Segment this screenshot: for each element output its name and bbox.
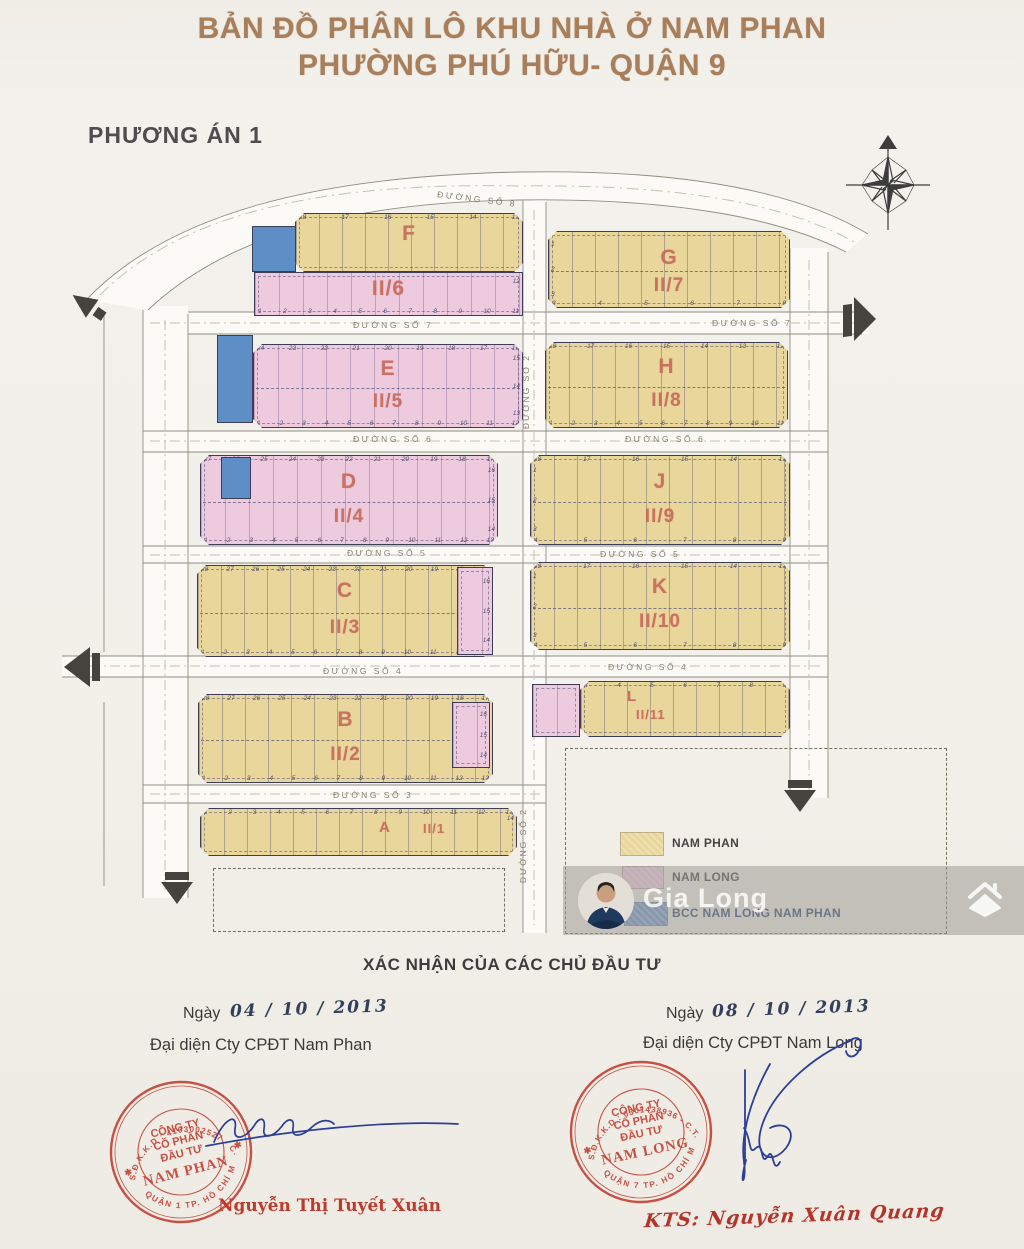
signature-right [743,1038,861,1180]
stamps-signatures-layer: S.Đ.K.K.D : 4103002527 - C.T.C QUẬN 1 TP… [0,0,1024,1249]
scanned-subdivision-map-page: BẢN ĐỒ PHÂN LÔ KHU NHÀ Ở NAM PHAN PHƯỜNG… [0,0,1024,1249]
svg-text:NAM LONG: NAM LONG [600,1134,690,1168]
company-stamp-nam-phan: S.Đ.K.K.D : 4103002527 - C.T.C QUẬN 1 TP… [96,1067,266,1237]
company-stamp-nam-long: S.Đ.K.K.D : 0301438936 - C.T.C.P QUẬN 7 … [558,1049,724,1215]
